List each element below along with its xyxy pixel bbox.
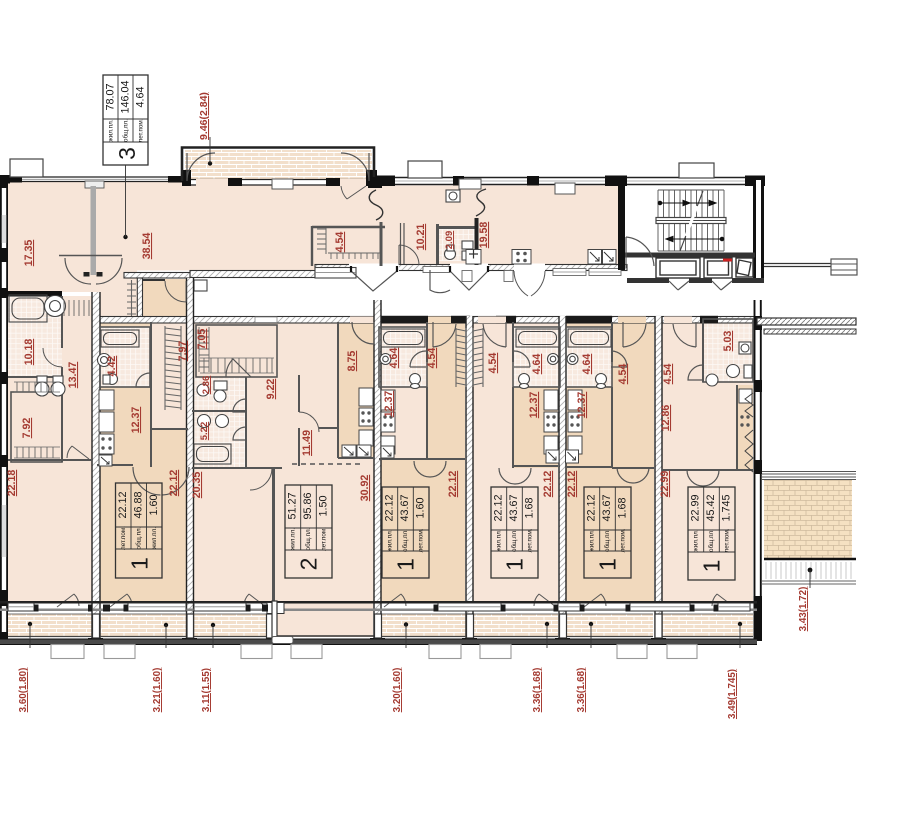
svg-text:2.09: 2.09 (444, 231, 455, 250)
svg-text:4.54: 4.54 (487, 353, 499, 374)
svg-text:общ.пл.: общ.пл. (510, 529, 518, 552)
svg-text:13.47: 13.47 (67, 362, 79, 389)
svg-text:3: 3 (114, 147, 140, 160)
svg-text:1: 1 (699, 560, 725, 573)
svg-text:22.12: 22.12 (168, 470, 180, 497)
svg-text:8.75: 8.75 (346, 351, 358, 372)
svg-text:общ.пл.: общ.пл. (707, 529, 715, 552)
svg-text:жил.пл.: жил.пл. (108, 119, 115, 141)
svg-text:30.92: 30.92 (359, 475, 371, 502)
svg-text:46.88: 46.88 (133, 491, 145, 518)
svg-text:5.22: 5.22 (199, 422, 210, 441)
svg-text:1.60: 1.60 (148, 494, 160, 515)
svg-text:78.07: 78.07 (105, 83, 117, 110)
svg-text:11.49: 11.49 (301, 430, 313, 456)
svg-text:12.37: 12.37 (576, 392, 588, 419)
svg-text:жил.пл.: жил.пл. (496, 529, 503, 551)
svg-text:1: 1 (502, 558, 528, 571)
svg-text:7.97: 7.97 (177, 341, 189, 362)
svg-text:4.64: 4.64 (135, 86, 147, 107)
svg-text:22.99: 22.99 (690, 494, 702, 521)
svg-text:9.22: 9.22 (265, 379, 277, 400)
svg-text:22.12: 22.12 (566, 471, 578, 498)
svg-text:3.43(1.72): 3.43(1.72) (798, 587, 809, 632)
svg-text:4.54: 4.54 (426, 348, 438, 369)
svg-text:5.03: 5.03 (722, 331, 734, 352)
svg-text:1.50: 1.50 (318, 495, 330, 516)
svg-text:3.36(1.68): 3.36(1.68) (576, 668, 587, 713)
svg-text:12.37: 12.37 (130, 407, 142, 434)
svg-text:38.54: 38.54 (141, 233, 153, 260)
svg-text:43.67: 43.67 (508, 494, 520, 521)
svg-text:4.54: 4.54 (334, 232, 346, 253)
svg-text:4.42: 4.42 (106, 356, 118, 377)
svg-text:1: 1 (595, 558, 621, 571)
svg-text:4.64: 4.64 (388, 348, 400, 369)
svg-text:1: 1 (393, 558, 419, 571)
svg-text:жил.пл.: жил.пл. (387, 529, 394, 551)
svg-text:12.37: 12.37 (528, 392, 540, 419)
svg-text:лет.пом.: лет.пом. (138, 118, 145, 142)
svg-text:лет.пом.: лет.пом. (724, 528, 731, 552)
svg-text:1: 1 (127, 557, 153, 570)
svg-text:3.49(1.745): 3.49(1.745) (727, 669, 738, 719)
svg-text:43.67: 43.67 (601, 494, 613, 521)
svg-text:10.21: 10.21 (415, 224, 427, 251)
svg-text:общ.пл.: общ.пл. (135, 526, 143, 549)
svg-text:жил.пл.: жил.пл. (589, 529, 596, 551)
svg-text:51.27: 51.27 (287, 492, 299, 519)
svg-text:1.68: 1.68 (617, 497, 629, 518)
svg-text:12.37: 12.37 (383, 391, 395, 418)
svg-text:20.35: 20.35 (191, 472, 203, 499)
svg-text:7.92: 7.92 (21, 418, 33, 439)
svg-text:1.68: 1.68 (524, 497, 536, 518)
svg-text:4.64: 4.64 (581, 354, 593, 375)
svg-text:общ.пл.: общ.пл. (603, 529, 611, 552)
svg-text:22.12: 22.12 (117, 491, 129, 518)
svg-text:4.64: 4.64 (531, 354, 543, 375)
svg-text:22.12: 22.12 (447, 471, 459, 498)
svg-text:лет.пом.: лет.пом. (321, 527, 328, 551)
svg-text:45.42: 45.42 (705, 494, 717, 521)
svg-text:общ.пл.: общ.пл. (401, 529, 409, 552)
svg-text:2: 2 (296, 558, 322, 571)
svg-text:жил.пл.: жил.пл. (151, 527, 158, 549)
svg-text:22.12: 22.12 (542, 471, 554, 498)
svg-text:3.21(1.60): 3.21(1.60) (152, 668, 163, 713)
svg-text:43.67: 43.67 (399, 494, 411, 521)
svg-text:жил.пл.: жил.пл. (290, 528, 297, 550)
svg-text:4.54: 4.54 (617, 364, 629, 385)
svg-text:3.11(1.55): 3.11(1.55) (201, 668, 212, 712)
svg-text:3.36(1.68): 3.36(1.68) (532, 668, 543, 713)
svg-text:22.99: 22.99 (659, 471, 671, 498)
svg-text:10.18: 10.18 (23, 339, 35, 366)
svg-text:лет.пом.: лет.пом. (620, 528, 627, 552)
svg-text:1.60: 1.60 (415, 497, 427, 518)
svg-text:146.04: 146.04 (120, 80, 132, 113)
svg-text:22.12: 22.12 (586, 494, 598, 521)
svg-text:3.20(1.60): 3.20(1.60) (392, 668, 403, 713)
svg-text:лет.пом.: лет.пом. (527, 528, 534, 552)
svg-text:22.12: 22.12 (493, 494, 505, 521)
svg-text:4.54: 4.54 (662, 364, 674, 385)
svg-text:22.12: 22.12 (384, 494, 396, 521)
svg-text:22.18: 22.18 (6, 470, 18, 497)
svg-text:19.58: 19.58 (478, 222, 490, 249)
svg-text:лет.пом.: лет.пом. (120, 526, 127, 550)
svg-text:лет.пом.: лет.пом. (418, 528, 425, 552)
svg-text:17.35: 17.35 (23, 240, 35, 267)
svg-text:жил.пл.: жил.пл. (693, 529, 700, 551)
svg-text:общ.пл.: общ.пл. (304, 527, 312, 550)
svg-text:9.46(2.84): 9.46(2.84) (198, 92, 210, 140)
svg-text:общ.пл.: общ.пл. (122, 119, 130, 142)
svg-text:95.86: 95.86 (302, 492, 314, 519)
svg-text:2.86: 2.86 (201, 376, 212, 395)
svg-text:1.745: 1.745 (721, 494, 733, 521)
svg-text:7.05: 7.05 (196, 329, 208, 350)
svg-text:3.60(1.80): 3.60(1.80) (18, 668, 29, 713)
svg-text:12.86: 12.86 (660, 405, 672, 432)
